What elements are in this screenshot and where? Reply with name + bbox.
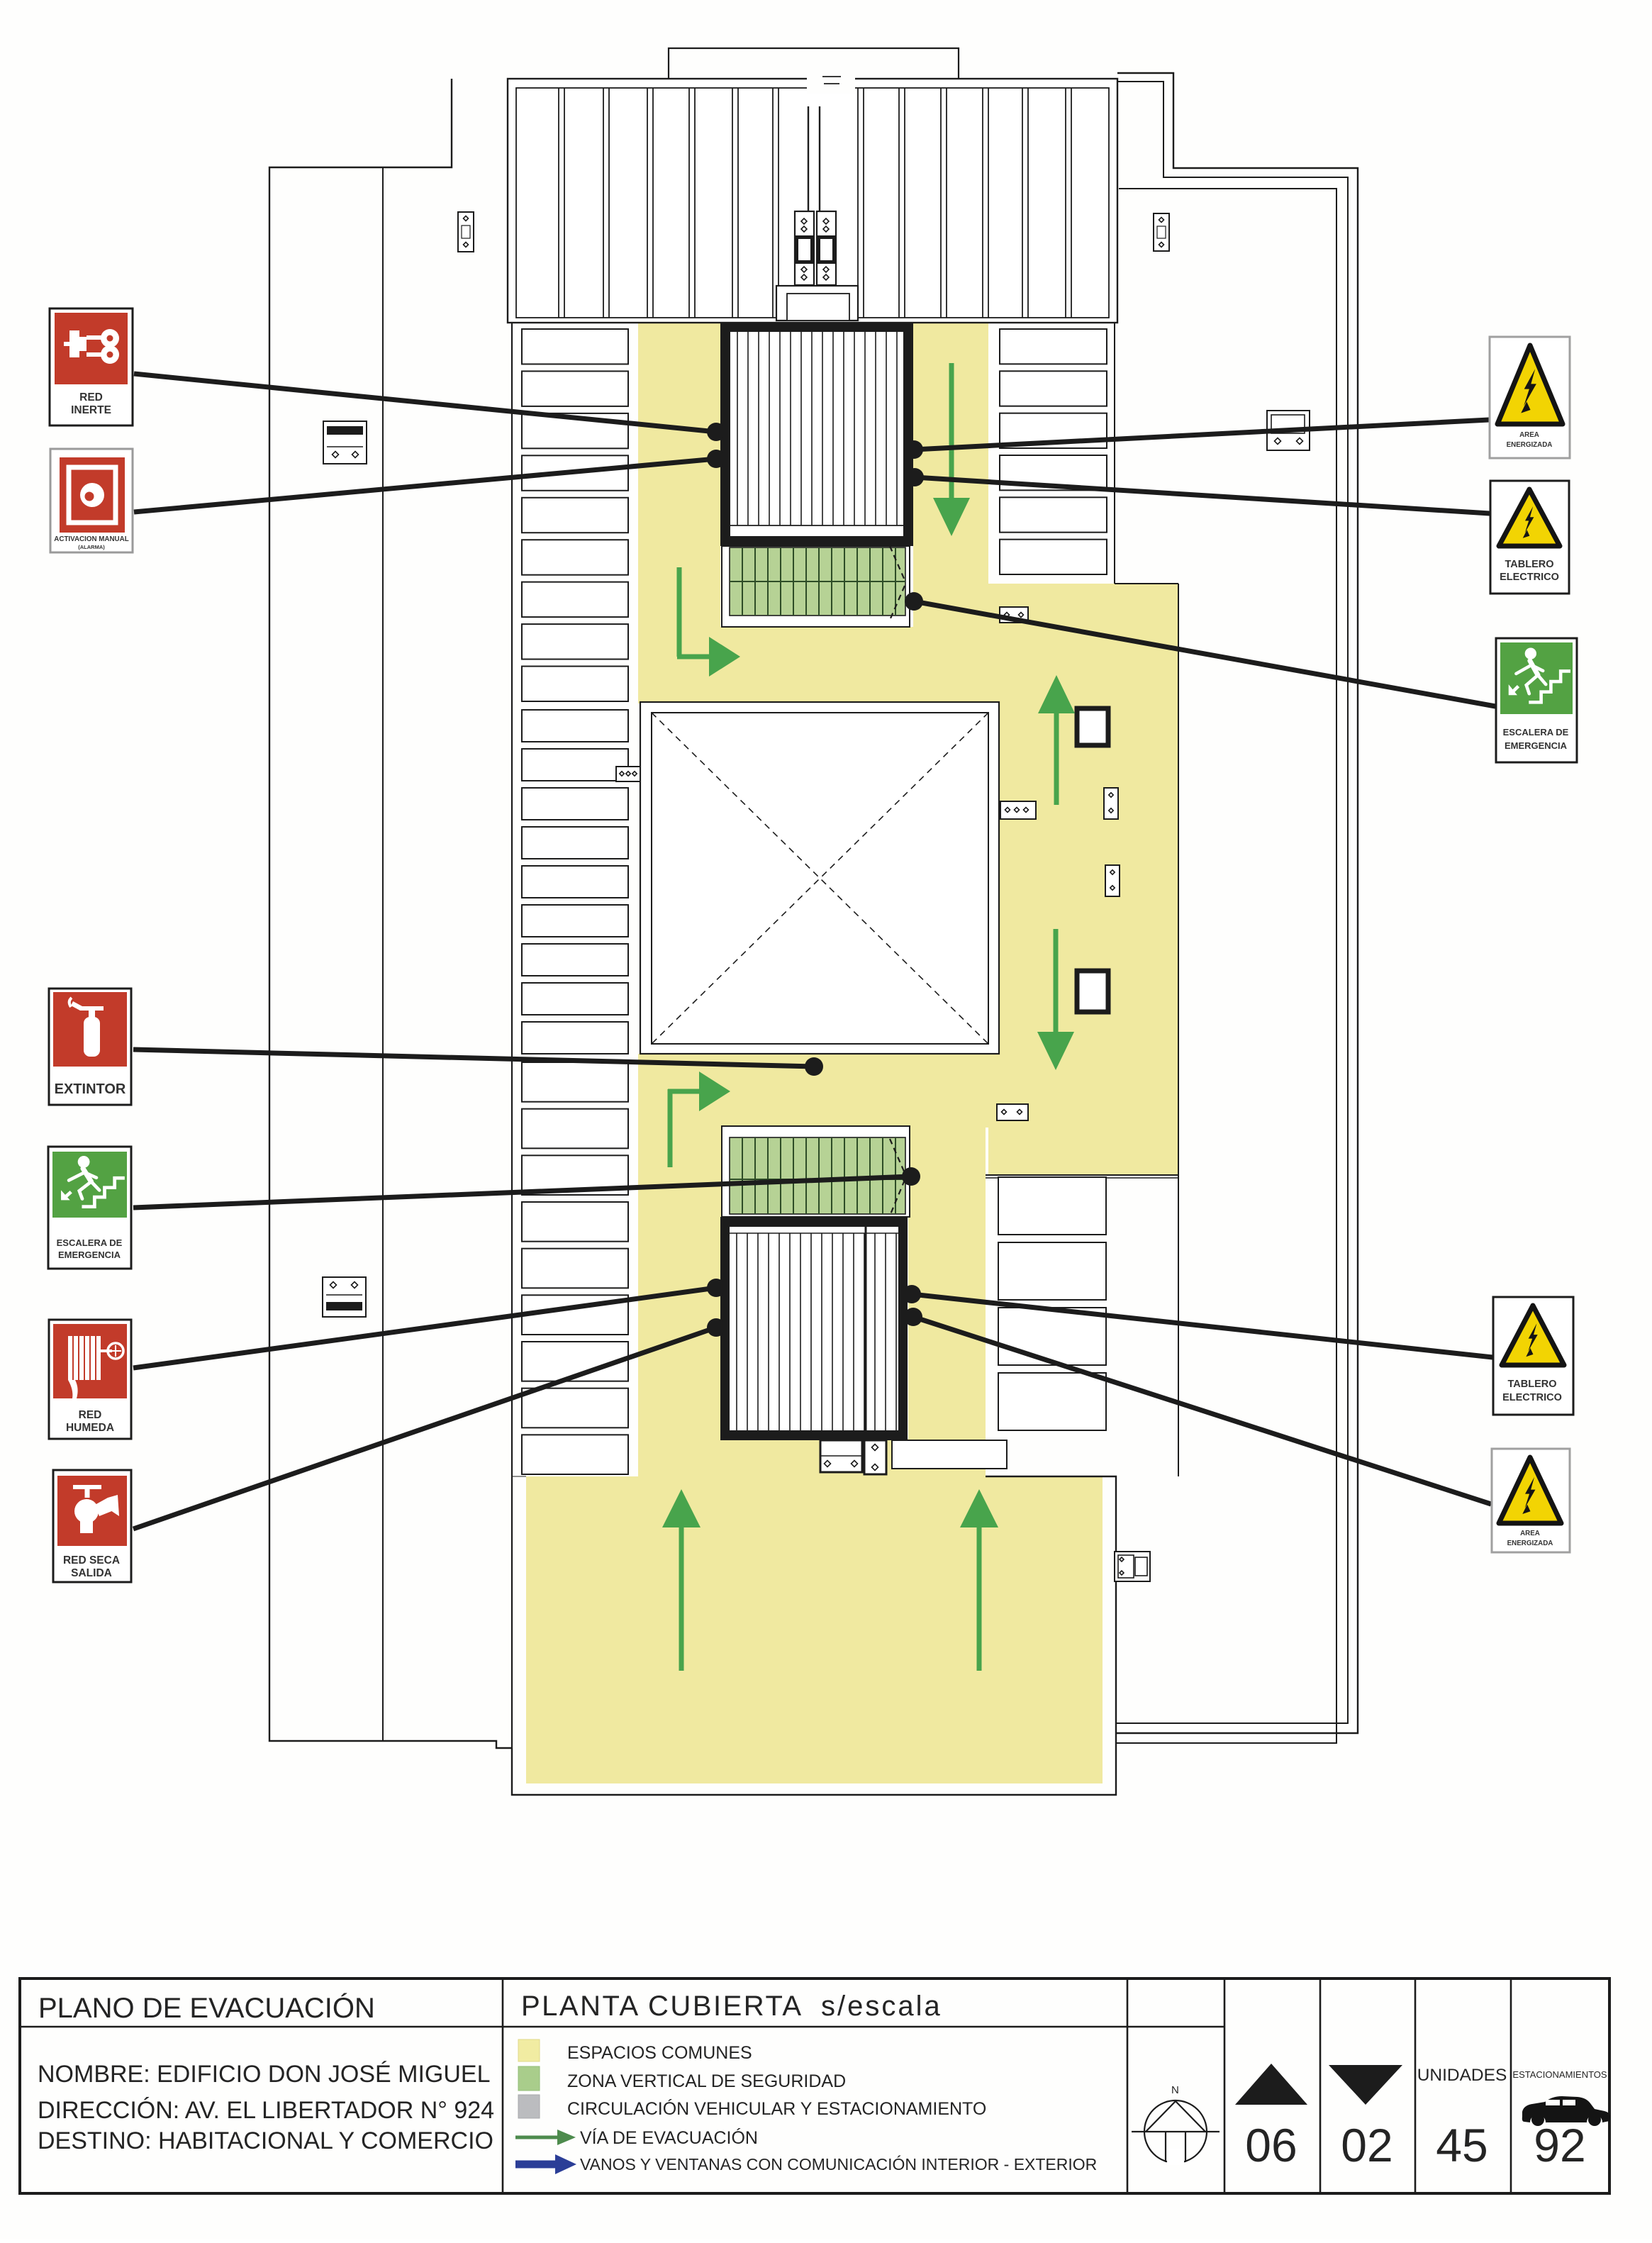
svg-text:ESTACIONAMIENTOS: ESTACIONAMIENTOS — [1512, 2069, 1607, 2080]
svg-text:TABLERO: TABLERO — [1507, 1379, 1556, 1390]
svg-text:02: 02 — [1341, 2119, 1393, 2171]
svg-text:(ALARMA): (ALARMA) — [78, 544, 105, 550]
svg-text:ESCALERA DE: ESCALERA DE — [1503, 727, 1569, 738]
svg-text:ACTIVACION MANUAL: ACTIVACION MANUAL — [54, 535, 128, 543]
svg-text:HUMEDA: HUMEDA — [66, 1422, 114, 1434]
svg-text:RED: RED — [79, 391, 103, 403]
svg-text:06: 06 — [1245, 2119, 1297, 2171]
svg-text:UNIDADES: UNIDADES — [1417, 2066, 1507, 2085]
svg-text:CIRCULACIÓN VEHICULAR Y ESTACI: CIRCULACIÓN VEHICULAR Y ESTACIONAMIENTO — [567, 2098, 986, 2119]
svg-text:SALIDA: SALIDA — [71, 1567, 112, 1579]
svg-text:VÍA DE EVACUACIÓN: VÍA DE EVACUACIÓN — [580, 2127, 758, 2148]
svg-text:EMERGENCIA: EMERGENCIA — [1505, 740, 1568, 751]
svg-text:ZONA VERTICAL DE SEGURIDAD: ZONA VERTICAL DE SEGURIDAD — [567, 2071, 846, 2091]
svg-text:DIRECCIÓN: AV. EL LIBERTADOR N: DIRECCIÓN: AV. EL LIBERTADOR N° 924 — [38, 2097, 494, 2124]
svg-text:VANOS Y VENTANAS CON COMUNICAC: VANOS Y VENTANAS CON COMUNICACIÓN INTERI… — [580, 2155, 1097, 2174]
svg-text:EMERGENCIA: EMERGENCIA — [58, 1249, 121, 1260]
svg-text:TABLERO: TABLERO — [1505, 559, 1553, 570]
svg-text:ESPACIOS COMUNES: ESPACIOS COMUNES — [567, 2043, 752, 2063]
svg-text:EXTINTOR: EXTINTOR — [55, 1081, 126, 1097]
svg-text:AREA: AREA — [1520, 1530, 1540, 1537]
svg-text:RED: RED — [79, 1409, 102, 1421]
svg-text:92: 92 — [1534, 2119, 1585, 2171]
svg-text:INERTE: INERTE — [71, 404, 111, 416]
svg-text:45: 45 — [1436, 2119, 1488, 2171]
svg-text:RED SECA: RED SECA — [63, 1554, 120, 1566]
svg-text:s/escala: s/escala — [821, 1991, 942, 2022]
svg-text:NOMBRE: EDIFICIO DON JOSÉ MIGU: NOMBRE: EDIFICIO DON JOSÉ MIGUEL — [38, 2061, 491, 2088]
svg-text:PLANO DE EVACUACIÓN: PLANO DE EVACUACIÓN — [38, 1992, 375, 2024]
svg-text:ELECTRICO: ELECTRICO — [1500, 572, 1559, 583]
svg-text:ESCALERA DE: ESCALERA DE — [57, 1237, 123, 1248]
svg-text:ELECTRICO: ELECTRICO — [1502, 1392, 1562, 1403]
svg-text:AREA: AREA — [1519, 431, 1539, 439]
svg-text:N: N — [1171, 2084, 1179, 2096]
svg-text:DESTINO: HABITACIONAL Y COMERC: DESTINO: HABITACIONAL Y COMERCIO — [38, 2127, 493, 2154]
svg-text:ENERGIZADA: ENERGIZADA — [1507, 441, 1553, 449]
svg-text:PLANTA CUBIERTA: PLANTA CUBIERTA — [521, 1991, 803, 2022]
svg-text:ENERGIZADA: ENERGIZADA — [1507, 1540, 1553, 1547]
